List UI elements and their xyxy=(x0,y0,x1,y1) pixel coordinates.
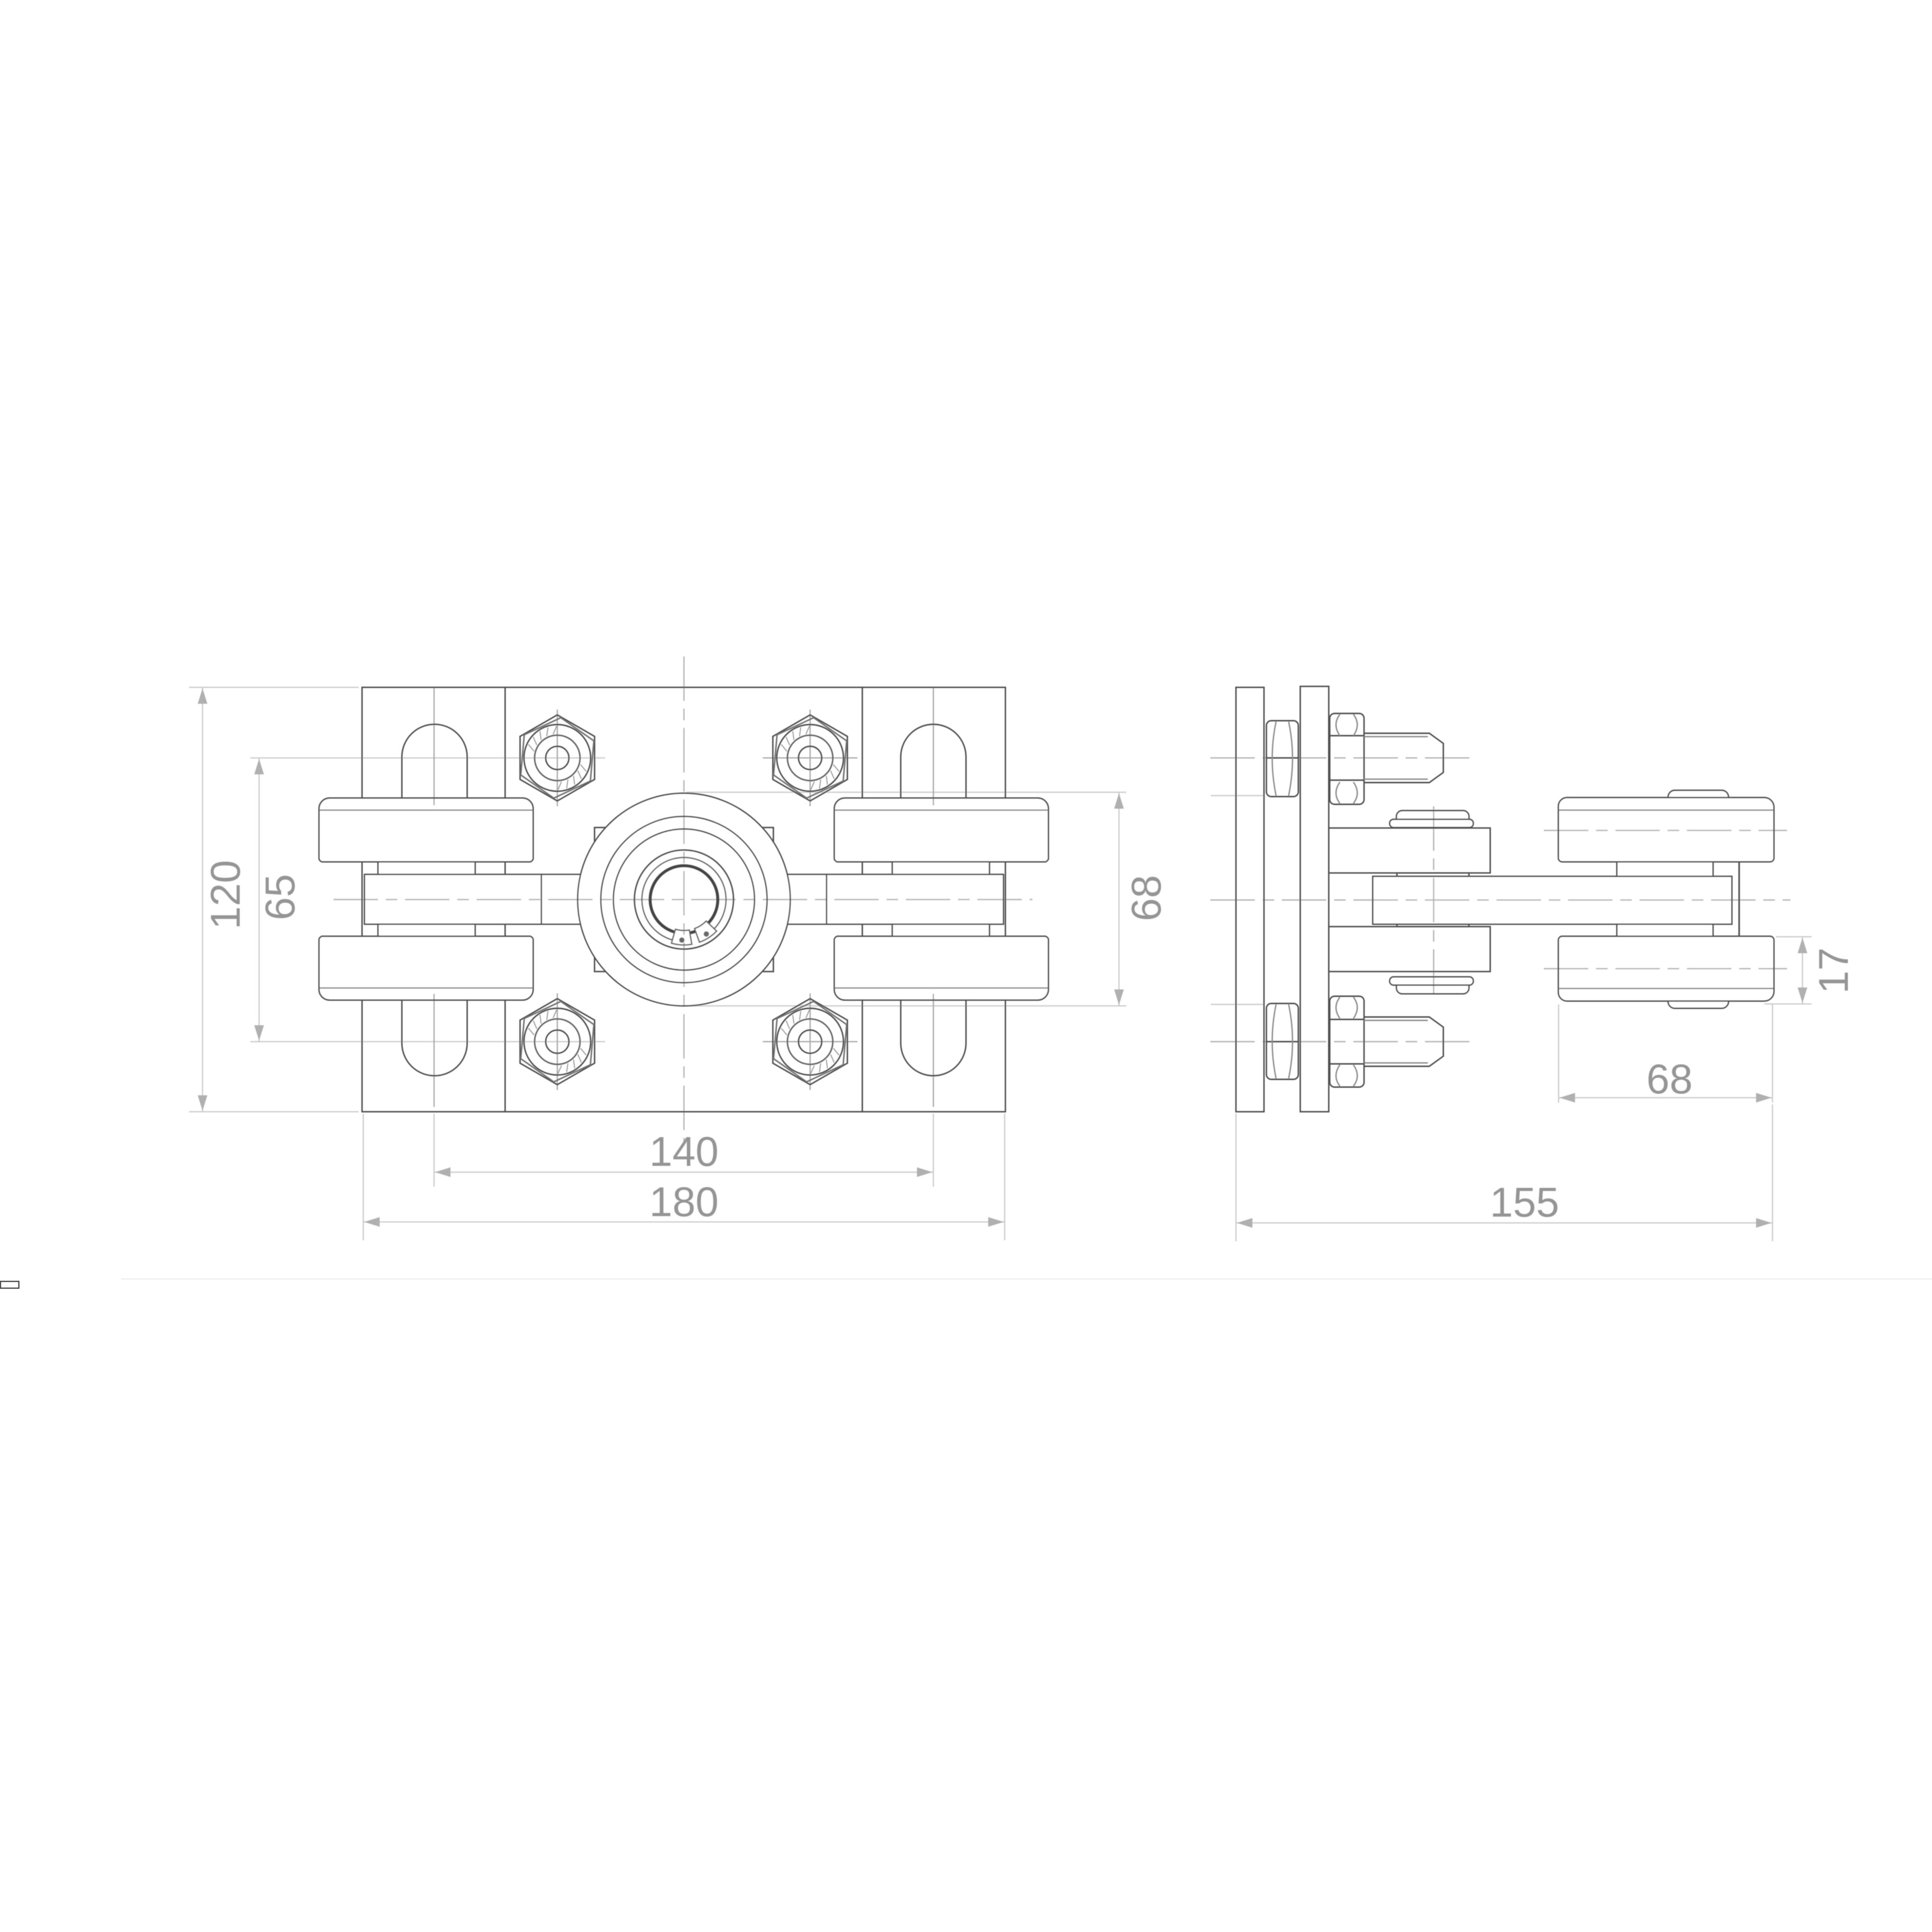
svg-text:140: 140 xyxy=(649,1129,719,1175)
svg-text:17: 17 xyxy=(1811,947,1857,994)
svg-text:68: 68 xyxy=(1646,1056,1693,1103)
svg-text:180: 180 xyxy=(649,1179,719,1225)
svg-text:120: 120 xyxy=(203,860,249,930)
svg-text:68: 68 xyxy=(1123,875,1170,921)
svg-text:65: 65 xyxy=(257,874,304,920)
svg-text:155: 155 xyxy=(1490,1179,1559,1226)
